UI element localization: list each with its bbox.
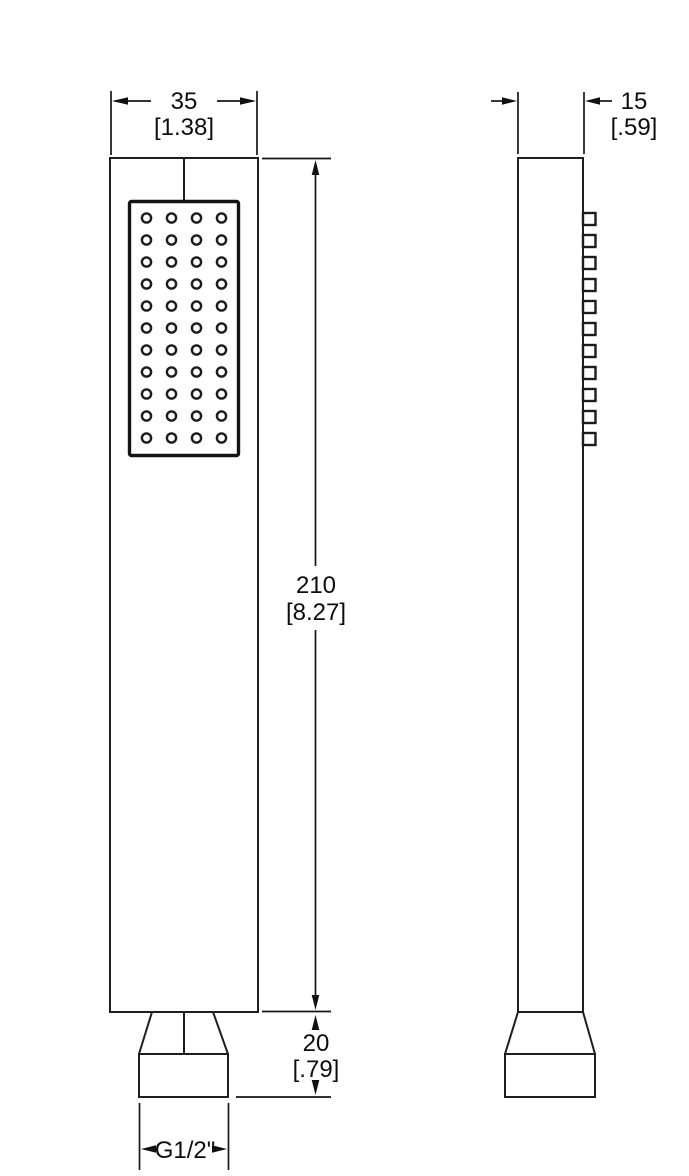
nozzle-circle	[167, 213, 176, 222]
nozzle-circle	[142, 323, 151, 332]
width-arrow-left-icon	[112, 97, 128, 105]
nozzle-square-profile	[583, 213, 596, 225]
dimension-height: 210 [8.27]	[262, 159, 346, 1012]
nozzle-circle	[142, 411, 151, 420]
nozzle-circle	[142, 367, 151, 376]
depth-arrow-left-icon	[502, 97, 517, 105]
nozzle-circle	[192, 345, 201, 354]
side-taper-left-line	[505, 1012, 518, 1054]
nozzle-circle	[142, 345, 151, 354]
nozzle-circle	[142, 389, 151, 398]
side-body-outline	[518, 158, 583, 1012]
nozzle-circle	[217, 213, 226, 222]
height-arrow-down-icon	[312, 995, 320, 1010]
height-arrow-up-icon	[312, 160, 320, 175]
nozzle-circle	[167, 235, 176, 244]
front-taper-right-line	[213, 1012, 228, 1054]
width-arrow-right-icon	[240, 97, 256, 105]
nozzle-circle	[217, 433, 226, 442]
drawing-canvas: 35 [1.38] 15 [.59] 210 [8.27]	[0, 0, 689, 1176]
nozzle-square-profile	[583, 433, 596, 445]
nozzle-square-profile	[583, 279, 596, 291]
nozzle-circle	[167, 257, 176, 266]
front-view	[110, 158, 258, 1097]
depth-mm-label: 15	[621, 88, 648, 115]
nozzle-circle	[192, 213, 201, 222]
connector-inch-label: [.79]	[293, 1056, 340, 1083]
nozzle-circle	[167, 279, 176, 288]
nozzle-circle	[217, 323, 226, 332]
nozzle-circle	[167, 345, 176, 354]
nozzle-circle	[167, 389, 176, 398]
nozzle-circle	[217, 257, 226, 266]
dimension-depth: 15 [.59]	[491, 88, 657, 154]
nozzle-square-profile	[583, 323, 596, 335]
nozzle-circle	[192, 279, 201, 288]
nozzle-square-profile	[583, 235, 596, 247]
side-nozzle-column	[583, 213, 596, 445]
nozzle-circle	[167, 367, 176, 376]
connector-arrow-up-icon	[312, 1015, 320, 1030]
side-taper-right-line	[583, 1012, 595, 1054]
nozzle-circle	[217, 389, 226, 398]
nozzle-circle	[167, 433, 176, 442]
nozzle-circle	[142, 433, 151, 442]
front-taper-left-line	[139, 1012, 152, 1054]
nozzle-square-profile	[583, 257, 596, 269]
nozzle-circle	[192, 389, 201, 398]
nozzle-circle	[192, 367, 201, 376]
technical-drawing: 35 [1.38] 15 [.59] 210 [8.27]	[0, 0, 689, 1176]
dimension-connector: 20 [.79]	[236, 1015, 339, 1097]
nozzle-circle	[142, 235, 151, 244]
connector-mm-label: 20	[303, 1030, 330, 1057]
nozzle-circle	[142, 257, 151, 266]
dimension-thread: G1/2"	[140, 1103, 229, 1170]
depth-inch-label: [.59]	[611, 114, 658, 141]
nozzle-circle	[192, 433, 201, 442]
nozzle-circle	[217, 367, 226, 376]
nozzle-circle	[217, 345, 226, 354]
front-connector-nut	[139, 1054, 228, 1097]
depth-arrow-right-icon	[585, 97, 600, 105]
width-mm-label: 35	[171, 88, 198, 115]
side-connector-nut	[505, 1054, 595, 1097]
nozzle-circle	[192, 323, 201, 332]
nozzle-circle	[192, 411, 201, 420]
dimension-width: 35 [1.38]	[111, 88, 257, 155]
nozzle-square-profile	[583, 301, 596, 313]
nozzle-circle	[217, 411, 226, 420]
nozzle-circle	[167, 323, 176, 332]
nozzle-circle	[217, 279, 226, 288]
nozzle-square-profile	[583, 389, 596, 401]
height-mm-label: 210	[296, 572, 336, 599]
width-inch-label: [1.38]	[154, 114, 214, 141]
side-view	[505, 158, 596, 1097]
nozzle-circle	[142, 213, 151, 222]
nozzle-square-profile	[583, 345, 596, 357]
nozzle-circle	[192, 257, 201, 266]
height-inch-label: [8.27]	[286, 599, 346, 626]
nozzle-square-profile	[583, 411, 596, 423]
nozzle-circle	[167, 301, 176, 310]
nozzle-circle	[142, 301, 151, 310]
nozzle-circle	[192, 235, 201, 244]
nozzle-circle	[217, 235, 226, 244]
thread-size-label: G1/2"	[155, 1137, 216, 1164]
nozzle-circle	[217, 301, 226, 310]
nozzle-circle	[167, 411, 176, 420]
nozzle-circle	[142, 279, 151, 288]
nozzle-circle	[192, 301, 201, 310]
nozzle-square-profile	[583, 367, 596, 379]
